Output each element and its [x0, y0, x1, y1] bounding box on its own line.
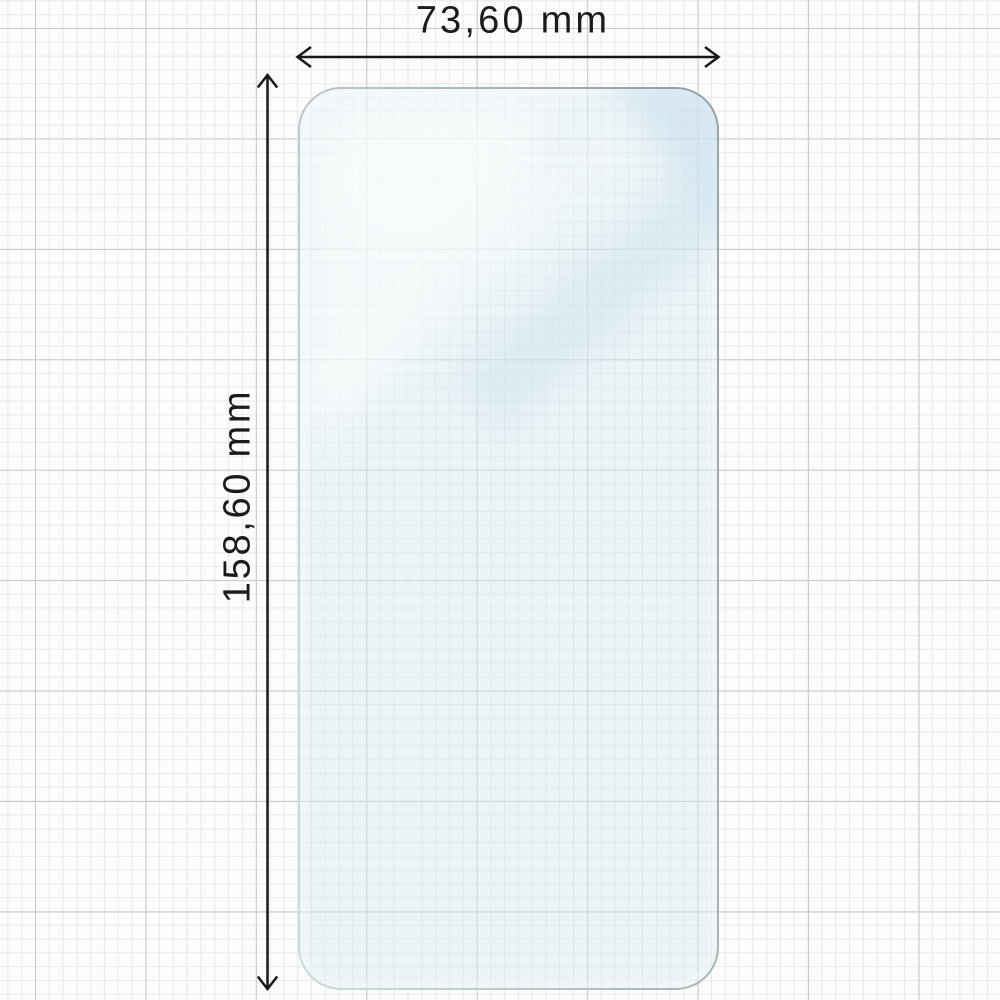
svg-text:73,60 mm: 73,60 mm — [416, 0, 611, 42]
svg-text:158,60 mm: 158,60 mm — [217, 389, 259, 603]
